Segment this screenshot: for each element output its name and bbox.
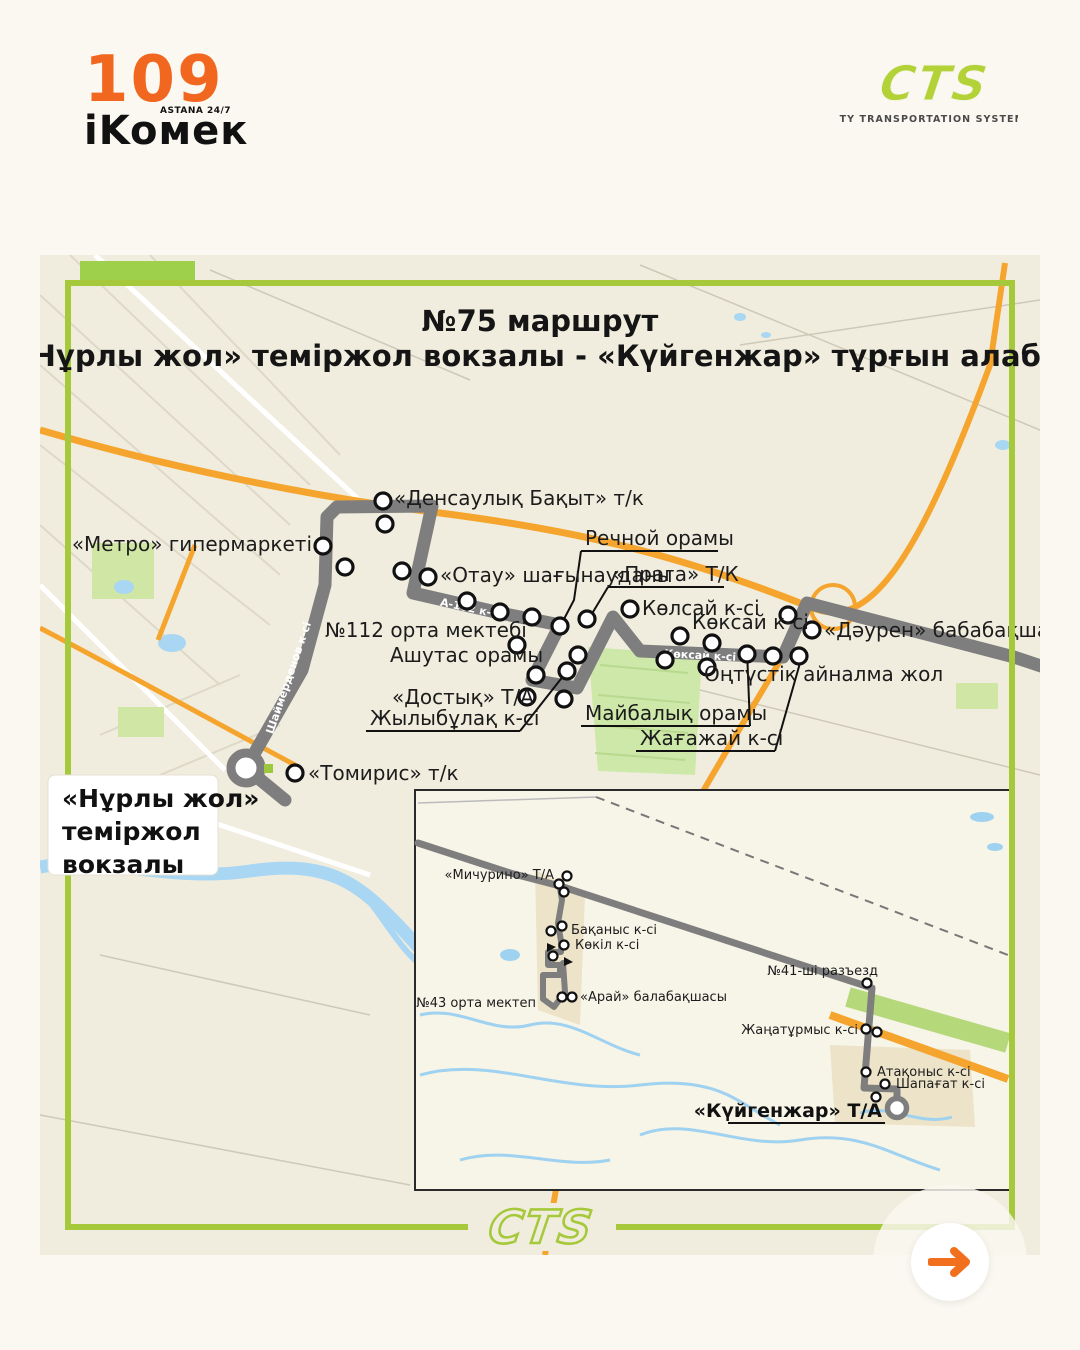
cts-logo: CTS CITY TRANSPORTATION SYSTEMS [838, 58, 1018, 134]
cts-logo-abbr-group: CTS [876, 58, 992, 112]
stop-label: «Метро» гипермаркеті [72, 532, 312, 556]
inset-stop-label: Шапағат к-сі [896, 1077, 985, 1092]
stop-label: №112 орта мектебі [325, 618, 527, 642]
stop-label: «Прага» Т/К [612, 562, 739, 586]
ikomek-number: 109 [84, 48, 344, 112]
terminal-roundabout [231, 753, 261, 783]
stop-label: Көксай к-сі [692, 610, 809, 634]
stop-label: Оңтүстік айналма жол [704, 662, 943, 686]
cts-watermark-text: CTS [485, 1200, 597, 1254]
ikomek-logo: 109 iKoмек ASTANA 24/7 [84, 48, 344, 154]
cts-logo-subtitle: CITY TRANSPORTATION SYSTEMS [838, 114, 1018, 125]
inset-map: «Мичурино» Т/А Бақаныс к-сі Көкіл к-сі «… [415, 790, 1010, 1190]
route-title-line2: «Нұрлы жол» теміржол вокзалы - «Күйгенжа… [40, 339, 1040, 373]
stop-label: «Томирис» т/к [308, 761, 459, 785]
terminal-box-line3: вокзалы [62, 850, 184, 879]
cts-watermark: CTS [468, 1200, 616, 1254]
ikomek-tagline: ASTANA 24/7 [160, 106, 231, 116]
inset-stop-label: Жаңатұрмыс к-сі [741, 1023, 858, 1038]
terminal-box-line1: «Нұрлы жол» [62, 784, 259, 813]
stop-label: «Дәурен» бабабақшасы [824, 618, 1040, 642]
stop-label: Речной орамы [585, 526, 734, 550]
inset-terminal-marker [888, 1099, 907, 1118]
inset-stop-label: №41-ші разъезд [767, 964, 878, 979]
terminal-green-square [264, 764, 273, 773]
stop-label: «Денсаулық Бақыт» т/к [394, 486, 644, 510]
stop-label: Жағажай к-сі [640, 726, 783, 750]
inset-stop-label: «Мичурино» Т/А [445, 868, 555, 883]
inset-stop-label: Бақаныс к-сі [571, 923, 657, 938]
stop-label: Майбалық орамы [585, 701, 767, 725]
route-map: «Мичурино» Т/А Бақаныс к-сі Көкіл к-сі «… [40, 255, 1040, 1255]
stop-label: Жылыбұлақ к-сі [370, 706, 539, 730]
next-button-halo [873, 1185, 1027, 1339]
inset-terminal-label: «Күйгенжар» Т/А [694, 1100, 883, 1122]
arrow-right-icon [928, 1247, 972, 1277]
stop-label: Ашутас орамы [390, 643, 543, 667]
inset-stop-label: Көкіл к-сі [575, 938, 639, 953]
next-page-button[interactable] [911, 1223, 989, 1301]
terminal-box-line2: теміржол [62, 817, 201, 846]
route-poster-page: 109 iKoмек ASTANA 24/7 CTS CITY TRANSPOR… [0, 0, 1080, 1350]
inset-stop-label: «Арай» балабақшасы [580, 990, 727, 1005]
cts-logo-abbr: CTS [876, 58, 992, 112]
map-canvas: «Мичурино» Т/А Бақаныс к-сі Көкіл к-сі «… [40, 255, 1040, 1255]
route-title-line1: №75 маршрут [422, 304, 659, 338]
inset-stop-label: №43 орта мектеп [416, 996, 536, 1011]
